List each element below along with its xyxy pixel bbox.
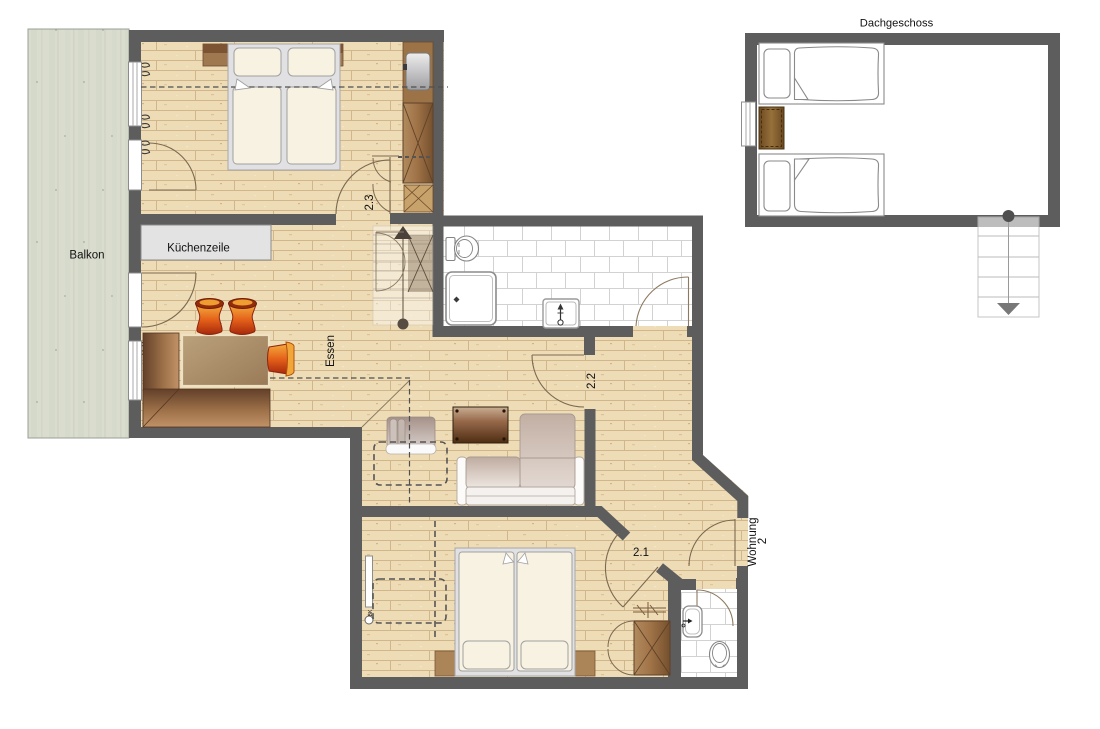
svg-text:Balkon: Balkon <box>69 250 104 262</box>
svg-text:2.1: 2.1 <box>633 547 649 559</box>
svg-text:2.2: 2.2 <box>586 373 598 389</box>
svg-text:Essen: Essen <box>325 335 337 367</box>
svg-text:2: 2 <box>757 538 769 544</box>
svg-text:Küchenzeile: Küchenzeile <box>167 243 230 255</box>
svg-text:2.3: 2.3 <box>364 195 376 211</box>
svg-text:Dachgeschoss: Dachgeschoss <box>860 18 934 30</box>
